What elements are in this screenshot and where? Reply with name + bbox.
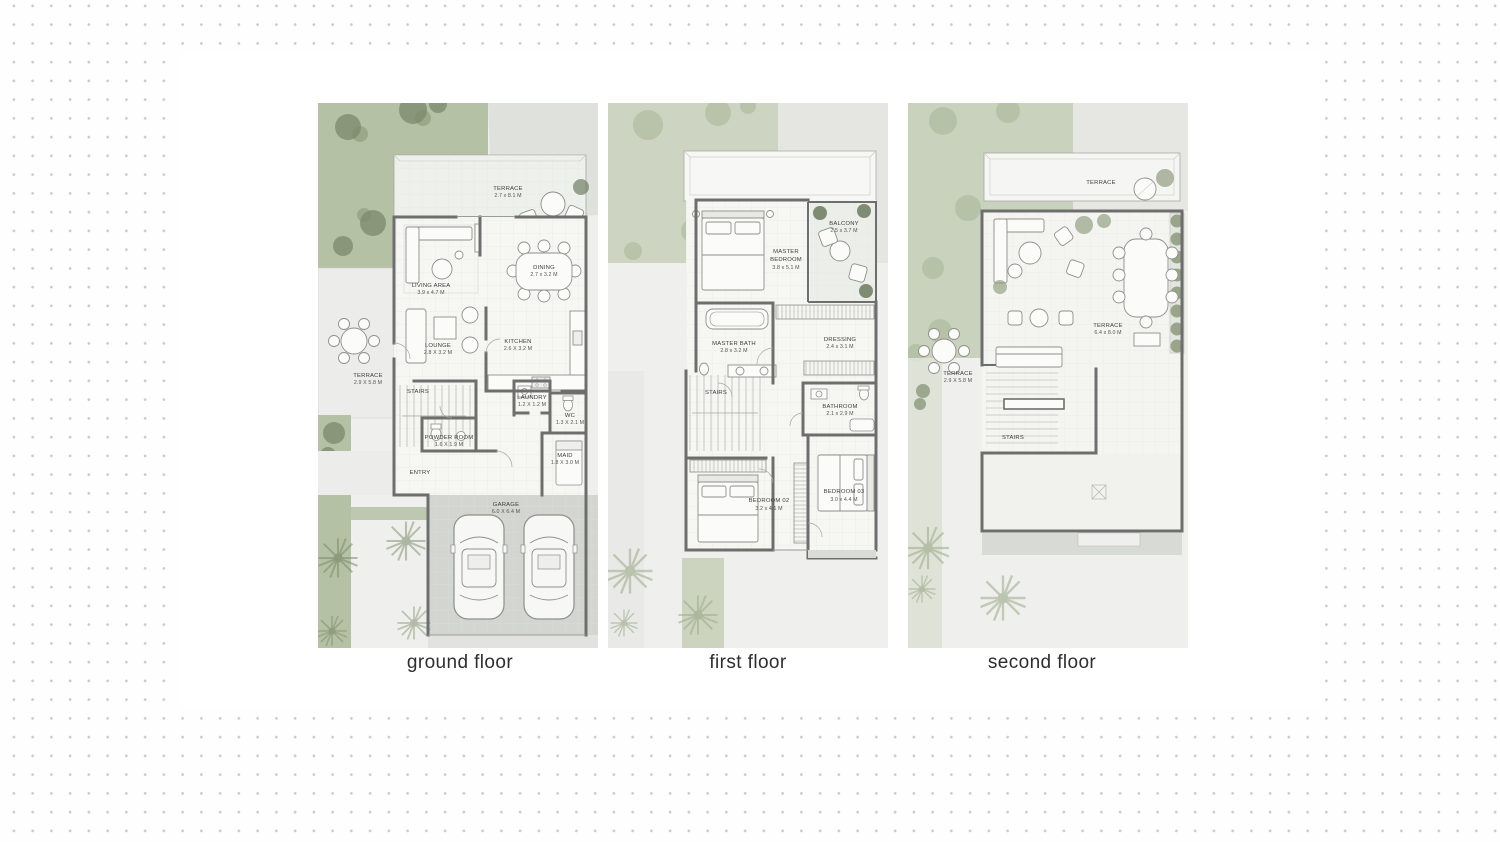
ground-room-dim-laundry: 1.2 X 1.2 M	[518, 402, 546, 408]
second-room-label-stairs: STAIRS	[1002, 435, 1024, 441]
ground-room-label-dining: DINING	[533, 265, 555, 271]
first-floor-drawing: MASTER BEDROOM 3.8 x 5.1 M BALCONY 2.5 x…	[608, 103, 888, 648]
ground-room-dim-maid: 1.8 X 3.0 M	[551, 460, 579, 466]
ground-room-label-living: LIVING AREA	[412, 283, 451, 289]
first-room-label-master-2: BEDROOM	[770, 257, 802, 263]
ground-room-label-terrace-left: TERRACE	[353, 373, 383, 379]
first-left-strip	[608, 371, 644, 648]
first-room-dim-bed03: 3.0 x 4.4 M	[830, 497, 857, 503]
ground-room-label-entry: ENTRY	[410, 470, 431, 476]
second-room-label-terrace-top: TERRACE	[1086, 180, 1116, 186]
ground-room-label-wc: WC	[565, 413, 576, 419]
ground-room-dim-wc: 1.3 X 2.1 M	[556, 420, 584, 426]
first-room-label-bathroom: BATHROOM	[822, 404, 857, 410]
first-step-band	[808, 550, 876, 558]
first-room-label-bed02: BEDROOM 02	[749, 498, 790, 504]
floorplan-second: TERRACE TERRACE 6.4 x 8.0 M TERRACE 2.9 …	[908, 103, 1188, 648]
ground-room-label-kitchen: KITCHEN	[504, 339, 531, 345]
first-room-dim-masterbath: 2.8 x 3.2 M	[720, 348, 747, 354]
first-room-label-bed03: BEDROOM 03	[824, 489, 865, 495]
first-room-dim-bed02: 3.2 x 4.1 M	[755, 506, 782, 512]
first-room-label-masterbath: MASTER BATH	[712, 341, 756, 347]
ground-room-label-powder: POWDER ROOM	[425, 435, 474, 441]
ground-room-label-lounge: LOUNGE	[425, 343, 451, 349]
floor-label-second: second floor	[902, 652, 1182, 684]
second-lower-floor	[982, 455, 1182, 531]
floorplan-canvas: TERRACE 2.7 x 8.1 M LIVING AREA 3.9 x 4.…	[180, 52, 1320, 708]
ground-green-band	[351, 507, 431, 520]
ground-room-label-garage: GARAGE	[493, 502, 519, 508]
first-room-label-master-1: MASTER	[773, 249, 799, 255]
ground-car-1	[451, 515, 507, 619]
ground-room-label-laundry: LAUNDRY	[517, 395, 546, 401]
ground-car-2	[521, 515, 577, 619]
ground-room-label-terrace-top: TERRACE	[493, 186, 523, 192]
first-room-dim-master: 3.8 x 5.1 M	[772, 265, 799, 271]
ground-entry-path	[318, 451, 394, 495]
floor-label-first: first floor	[608, 652, 888, 684]
ground-room-label-stairs: STAIRS	[407, 389, 429, 395]
floorplan-first: MASTER BEDROOM 3.8 x 5.1 M BALCONY 2.5 x…	[608, 103, 888, 648]
second-band-notch	[1078, 533, 1140, 546]
first-room-dim-dressing: 2.4 x 3.1 M	[826, 344, 853, 350]
ground-room-dim-kitchen: 2.6 X 3.2 M	[504, 346, 532, 352]
ground-room-dim-dining: 2.7 x 3.2 M	[530, 272, 557, 278]
ground-room-dim-living: 3.9 x 4.7 M	[417, 290, 444, 296]
second-terrace-top	[984, 153, 1180, 201]
second-room-dim-terrace-main: 6.4 x 8.0 M	[1094, 330, 1121, 336]
first-room-dim-balcony: 2.5 x 3.7 M	[830, 228, 857, 234]
ground-room-dim-terrace-top: 2.7 x 8.1 M	[494, 193, 521, 199]
first-room-dim-bathroom: 2.1 x 2.9 M	[826, 411, 853, 417]
second-room-label-terrace-main: TERRACE	[1093, 323, 1123, 329]
floorplan-ground: TERRACE 2.7 x 8.1 M LIVING AREA 3.9 x 4.…	[318, 103, 598, 648]
first-master-bed	[693, 211, 774, 291]
second-stairs-landing	[1004, 399, 1064, 409]
ground-room-dim-lounge: 2.8 X 3.2 M	[424, 350, 452, 356]
second-room-dim-terrace-left: 2.9 X 5.8 M	[944, 378, 972, 384]
first-bed02	[698, 475, 758, 542]
ground-driveway	[428, 635, 598, 648]
first-room-label-balcony: BALCONY	[829, 221, 859, 227]
second-floor-drawing: TERRACE TERRACE 6.4 x 8.0 M TERRACE 2.9 …	[908, 103, 1188, 648]
ground-room-dim-terrace-left: 2.9 X 5.8 M	[354, 380, 382, 386]
first-room-label-dressing: DRESSING	[824, 337, 857, 343]
first-room-label-stairs: STAIRS	[705, 390, 727, 396]
first-roof-band	[684, 151, 876, 201]
ground-room-dim-powder: 1.6 X 1.9 M	[435, 442, 463, 448]
ground-room-dim-garage: 6.0 X 6.4 M	[492, 509, 520, 515]
ground-room-label-maid: MAID	[557, 453, 573, 459]
second-room-label-terrace-left: TERRACE	[943, 371, 973, 377]
ground-floor-drawing: TERRACE 2.7 x 8.1 M LIVING AREA 3.9 x 4.…	[318, 103, 598, 648]
floor-label-ground: ground floor	[320, 652, 600, 684]
ground-dining-furniture	[507, 240, 581, 302]
